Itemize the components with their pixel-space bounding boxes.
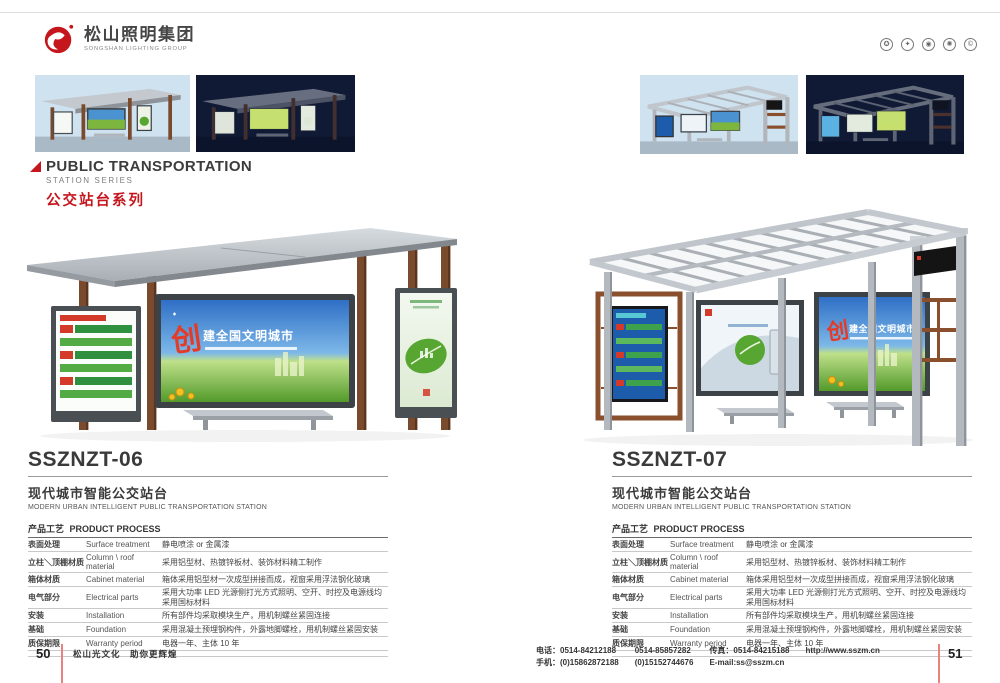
product-title-en: MODERN URBAN INTELLIGENT PUBLIC TRANSPOR…: [612, 504, 972, 511]
process-table-cell: Installation: [670, 611, 746, 620]
thumbnail-ssznzt06-night: [196, 75, 355, 152]
roof: [27, 228, 457, 287]
process-table-cell: 表面处理: [28, 539, 86, 550]
page-number-right: 51: [948, 646, 962, 661]
process-table-row: 箱体材质Cabinet material箱体采用铝型材一次成型拼接而成，视窗采用…: [612, 573, 972, 587]
process-table-cell: Installation: [86, 611, 162, 620]
logo-swirl-icon: [42, 22, 76, 56]
process-table-cell: 立柱＼顶棚材质: [612, 557, 670, 568]
red-triangle-icon: [30, 161, 41, 172]
phone-line: 电话：0514-84212188: [536, 645, 619, 657]
process-table-row: 箱体材质Cabinet material箱体采用铝型材一次成型拼接而成，视窗采用…: [28, 573, 388, 587]
logo-name-cn: 松山照明集团: [84, 26, 195, 44]
fax-line: 传真：0514-84215188: [709, 645, 789, 657]
mobile-line: 手机：(0)15862872188: [536, 657, 619, 669]
product-info-ssznzt06: SSZNZT-06 现代城市智能公交站台 MODERN URBAN INTELL…: [28, 448, 388, 657]
process-table-cell: Cabinet material: [86, 575, 162, 584]
process-table-row: 电气部分Electrical parts采用大功率 LED 光源侧打光方式照明、…: [28, 587, 388, 608]
certification-badge-icon: ✺: [943, 38, 956, 51]
series-title-cn: 公交站台系列: [46, 189, 252, 210]
process-table-row: 表面处理Surface treatment静电喷涂 or 金属漆: [612, 538, 972, 552]
process-table-cell: 安装: [28, 610, 86, 621]
process-table-cell: 电气部分: [612, 592, 670, 603]
process-table-cell: 采用混凝土预埋钢构件，外露地脚螺栓，用机制螺丝紧固安装: [746, 625, 972, 634]
process-table-cell: 所有部件均采取模块生产，用机制螺丝紧固连接: [746, 611, 972, 620]
process-table-cell: Warranty period: [86, 639, 162, 648]
certification-badge-icon: ©: [964, 38, 977, 51]
process-table-title: 产品工艺 PRODUCT PROCESS: [612, 522, 972, 538]
process-table-cell: Surface treatment: [670, 540, 746, 549]
process-table-row: 立柱＼顶棚材质Column \ roof material采用铝型材、热镀锌板材…: [28, 552, 388, 573]
footer-contact: 电话：0514-84212188 手机：(0)15862872188 0514-…: [536, 645, 880, 670]
process-table-cell: 电气部分: [28, 592, 86, 603]
certification-badges: ✪ ✦ ◉ ✺ ©: [880, 38, 977, 51]
process-table: 产品工艺 PRODUCT PROCESS 表面处理Surface treatme…: [28, 522, 388, 657]
ad-panel-white: [696, 300, 804, 396]
product-title-cn: 现代城市智能公交站台: [612, 483, 972, 502]
company-logo: 松山照明集团 SONGSHAN LIGHTING GROUP: [42, 22, 195, 56]
mobile-2: (0)15152744676: [635, 657, 694, 669]
process-table-cell: 基础: [28, 624, 86, 635]
footer-rule-left: [61, 644, 63, 683]
product-render-ssznzt06: 创 建全国文明城市: [25, 208, 460, 446]
process-table-title-cn: 产品工艺: [28, 524, 64, 534]
billboard: 创 建全国文明城市: [155, 294, 355, 408]
process-table-cell: 箱体采用铝型材一次成型拼接而成，视窗采用浮法钢化玻璃: [746, 575, 972, 584]
catalog-spread: 松山照明集团 SONGSHAN LIGHTING GROUP ✪ ✦ ◉ ✺ ©: [0, 0, 1000, 683]
process-table-row: 立柱＼顶棚材质Column \ roof material采用铝型材、热镀锌板材…: [612, 552, 972, 573]
process-table-row: 电气部分Electrical parts采用大功率 LED 光源侧打光方式照明、…: [612, 587, 972, 608]
series-subtitle-en: STATION SERIES: [46, 176, 252, 185]
process-table-row: 安装Installation所有部件均采取模块生产，用机制螺丝紧固连接: [28, 609, 388, 623]
process-table-row: 基础Foundation采用混凝土预埋钢构件，外露地脚螺栓，用机制螺丝紧固安装: [612, 623, 972, 637]
process-table-cell: Column \ roof material: [670, 553, 746, 571]
process-table-cell: 静电喷涂 or 金属漆: [162, 540, 388, 549]
process-table-title-cn: 产品工艺: [612, 524, 648, 534]
process-table-cell: 采用大功率 LED 光源侧打光方式照明、空开、时控及电源线均采用国标材料: [746, 588, 972, 606]
process-table-cell: Electrical parts: [670, 593, 746, 602]
process-table-row: 基础Foundation采用混凝土预埋钢构件，外露地脚螺栓，用机制螺丝紧固安装: [28, 623, 388, 637]
certification-badge-icon: ✦: [901, 38, 914, 51]
process-table-title: 产品工艺 PRODUCT PROCESS: [28, 522, 388, 538]
right-portal: [910, 228, 968, 446]
process-table-cell: 静电喷涂 or 金属漆: [746, 540, 972, 549]
bench: [183, 410, 333, 430]
process-table-cell: 采用铝型材、热镀锌板材、装饰材料精工制作: [162, 558, 388, 567]
process-table-cell: 电器一年、主体 10 年: [162, 639, 388, 648]
process-table-cell: Column \ roof material: [86, 553, 162, 571]
product-title-cn: 现代城市智能公交站台: [28, 483, 388, 502]
process-table-cell: 基础: [612, 624, 670, 635]
process-table-cell: 立柱＼顶棚材质: [28, 557, 86, 568]
process-table-cell: 安装: [612, 610, 670, 621]
page-number-left: 50: [36, 646, 50, 661]
top-divider: [0, 12, 1000, 13]
billboard-slogan: 建全国文明城市: [202, 328, 294, 343]
email-line: E-mail:ss@sszm.cn: [709, 657, 789, 669]
process-table-cell: Foundation: [670, 625, 746, 634]
footer-rule-right: [938, 644, 940, 683]
billboard-lead-char: 创: [168, 322, 203, 359]
thumbnail-ssznzt07-night: [806, 75, 964, 154]
process-table-cell: 箱体材质: [612, 574, 670, 585]
process-table-cell: 表面处理: [612, 539, 670, 550]
process-table-cell: Surface treatment: [86, 540, 162, 549]
product-render-ssznzt07: 创 建全国文明城市: [578, 198, 983, 450]
series-heading: PUBLIC TRANSPORTATION STATION SERIES 公交站…: [30, 158, 252, 210]
certification-badge-icon: ◉: [922, 38, 935, 51]
process-table-row: 安装Installation所有部件均采取模块生产，用机制螺丝紧固连接: [612, 609, 972, 623]
product-model: SSZNZT-07: [612, 448, 972, 477]
process-table-cell: 采用混凝土预埋钢构件，外露地脚螺栓，用机制螺丝紧固安装: [162, 625, 388, 634]
footer-slogan: 松山光文化 助你更辉煌: [73, 648, 178, 660]
process-table-cell: 采用大功率 LED 光源侧打光方式照明、空开、时控及电源线均采用国标材料: [162, 588, 388, 606]
process-table-cell: Cabinet material: [670, 575, 746, 584]
billboard-slogan: 建全国文明城市: [849, 323, 916, 334]
process-table-cell: Foundation: [86, 625, 162, 634]
process-table-cell: 箱体采用铝型材一次成型拼接而成，视窗采用浮法钢化玻璃: [162, 575, 388, 584]
process-table-title-en: PRODUCT PROCESS: [70, 524, 161, 534]
series-title-en: PUBLIC TRANSPORTATION: [46, 158, 252, 175]
process-table-cell: 箱体材质: [28, 574, 86, 585]
website-line: http://www.sszm.cn: [806, 645, 880, 657]
process-table: 产品工艺 PRODUCT PROCESS 表面处理Surface treatme…: [612, 522, 972, 657]
phone-2: 0514-85857282: [635, 645, 694, 657]
product-model: SSZNZT-06: [28, 448, 388, 477]
poster-lightbox: [395, 288, 457, 418]
thumbnail-ssznzt06-day: [35, 75, 190, 152]
process-table-cell: 所有部件均采取模块生产，用机制螺丝紧固连接: [162, 611, 388, 620]
process-table-title-en: PRODUCT PROCESS: [654, 524, 745, 534]
route-sign: [51, 306, 141, 422]
certification-badge-icon: ✪: [880, 38, 893, 51]
process-table-cell: 采用铝型材、热镀锌板材、装饰材料精工制作: [746, 558, 972, 567]
product-title-en: MODERN URBAN INTELLIGENT PUBLIC TRANSPOR…: [28, 504, 388, 511]
billboard-lead-char: 创: [824, 317, 850, 345]
product-info-ssznzt07: SSZNZT-07 现代城市智能公交站台 MODERN URBAN INTELL…: [612, 448, 972, 657]
logo-name-en: SONGSHAN LIGHTING GROUP: [84, 46, 195, 52]
process-table-cell: Electrical parts: [86, 593, 162, 602]
thumbnail-ssznzt07-day: [640, 75, 798, 154]
process-table-row: 表面处理Surface treatment静电喷涂 or 金属漆: [28, 538, 388, 552]
